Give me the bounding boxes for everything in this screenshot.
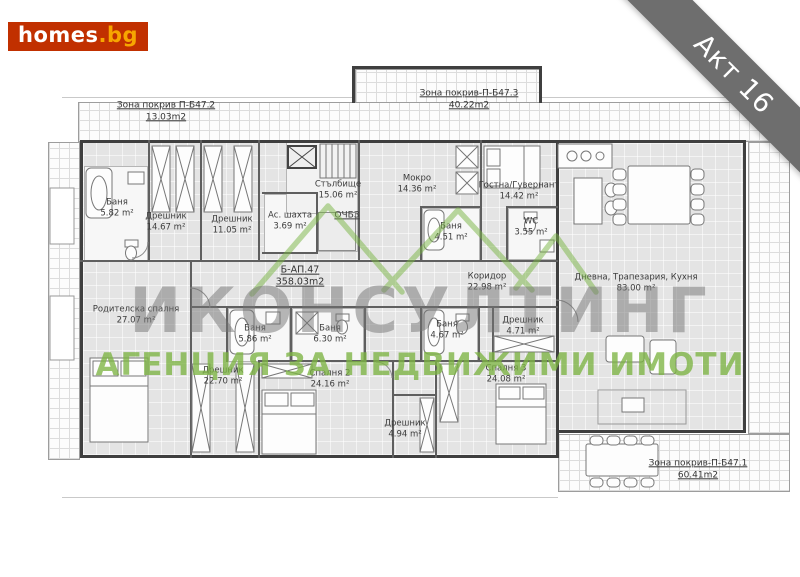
roof-zone-label: Зона покрив-П-Б47.340.22m2 xyxy=(420,88,519,111)
elevator-icon xyxy=(288,146,316,168)
dining-table-icon xyxy=(613,166,704,225)
room-label: Баня4.51 m² xyxy=(434,221,467,242)
washer-icon xyxy=(456,146,478,194)
stairs-icon xyxy=(320,144,356,178)
kitchen-counter-icon xyxy=(558,144,617,224)
room-label: ОЧБЗ xyxy=(334,210,359,221)
room-label: Ас. шахта3.69 m² xyxy=(268,210,312,231)
room-label: Стълбище15.06 m² xyxy=(315,179,361,200)
room-label: Дрешник11.05 m² xyxy=(211,214,252,235)
logo-text: homes xyxy=(18,23,99,47)
homes-bg-logo: homes.bg xyxy=(8,22,148,51)
room-label: Гостна/Гувернант14.42 m² xyxy=(479,180,560,201)
room-label: WC3.55 m² xyxy=(514,216,547,237)
roof-zone-label: Зона покрив-П-Б47.160.41m2 xyxy=(649,458,748,481)
room-label: Мокро14.36 m² xyxy=(398,173,437,194)
room-label: Дрешник4.94 m² xyxy=(384,418,425,439)
roof-zone-label: Зона покрив П-Б47.213.03m2 xyxy=(117,100,215,123)
logo-suffix: .bg xyxy=(99,23,139,47)
watermark-agency-tagline: АГЕНЦИЯ ЗА НЕДВИЖИМИ ИМОТИ xyxy=(95,347,744,383)
balcony-panel xyxy=(50,188,74,360)
outdoor-table-icon xyxy=(586,436,658,487)
room-label: Баня5.82 m² xyxy=(100,197,133,218)
room-label: Дрешник14.67 m² xyxy=(145,211,186,232)
watermark-agency-name: ИКОНСУЛТИНГ xyxy=(129,274,711,347)
listing-photo-floorplan: Баня5.82 m²Дрешник14.67 m²Дрешник11.05 m… xyxy=(0,0,800,577)
